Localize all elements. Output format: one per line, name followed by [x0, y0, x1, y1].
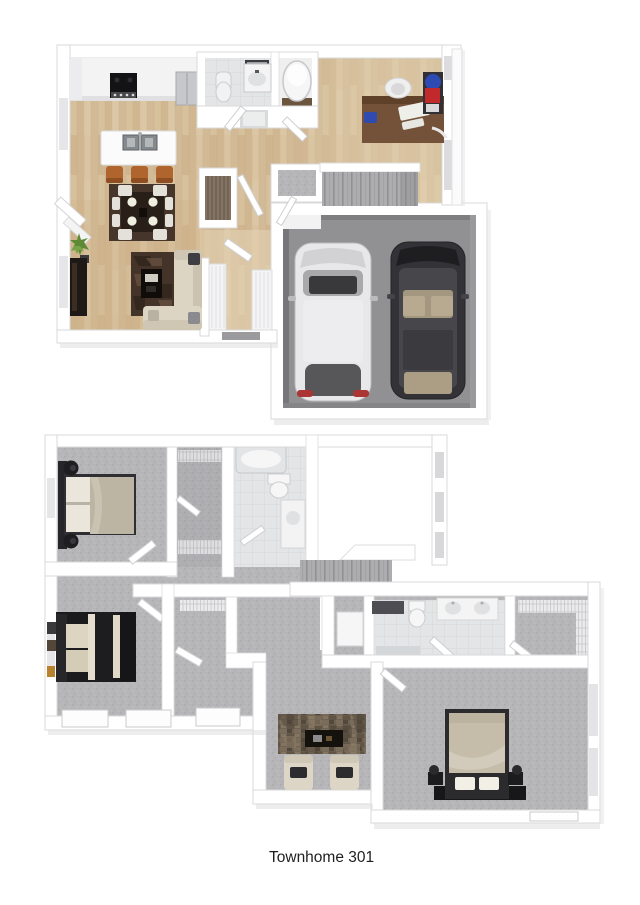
- svg-text:Townhome 301: Townhome 301: [269, 849, 374, 866]
